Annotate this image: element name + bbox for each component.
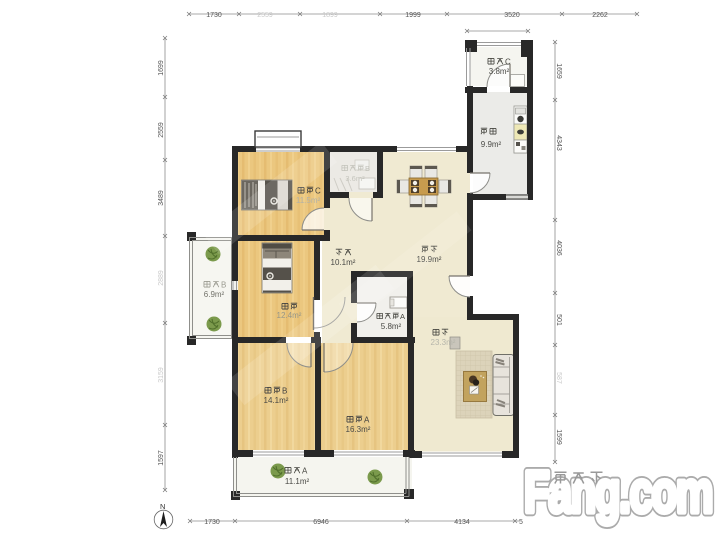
svg-text:1730: 1730 <box>206 12 222 19</box>
svg-text:A: A <box>400 312 405 321</box>
svg-text:11.5m²: 11.5m² <box>296 196 321 205</box>
svg-text:N: N <box>160 502 165 511</box>
svg-text:501: 501 <box>555 314 562 326</box>
svg-text:16.3m²: 16.3m² <box>346 425 371 434</box>
svg-text:B: B <box>221 281 226 290</box>
svg-text:2262: 2262 <box>592 12 608 19</box>
svg-text:587: 587 <box>555 372 562 384</box>
svg-text:B: B <box>365 164 370 173</box>
svg-text:C: C <box>315 187 321 196</box>
svg-text:2559: 2559 <box>158 122 165 138</box>
svg-text:3.6m²: 3.6m² <box>345 174 365 183</box>
svg-text:3.8m²: 3.8m² <box>489 67 510 76</box>
svg-text:A: A <box>364 416 370 425</box>
svg-text:C: C <box>505 58 511 67</box>
svg-text:2889: 2889 <box>158 270 165 286</box>
svg-text:1699: 1699 <box>158 60 165 76</box>
svg-text:1597: 1597 <box>158 450 165 466</box>
svg-text:1599: 1599 <box>555 429 562 445</box>
svg-text:3520: 3520 <box>504 12 520 19</box>
svg-text:5.8m²: 5.8m² <box>381 322 402 331</box>
svg-text:4343: 4343 <box>555 135 562 151</box>
svg-text:1999: 1999 <box>405 12 421 19</box>
svg-text:6.9m²: 6.9m² <box>204 290 225 299</box>
svg-text:4134: 4134 <box>454 519 470 526</box>
svg-text:2559: 2559 <box>257 12 273 19</box>
svg-text:12.4m²: 12.4m² <box>277 311 302 320</box>
svg-text:Fang.com: Fang.com <box>524 460 712 525</box>
svg-text:5: 5 <box>519 519 523 526</box>
svg-text:A: A <box>302 467 308 476</box>
svg-text:11.1m²: 11.1m² <box>285 477 310 486</box>
svg-text:3159: 3159 <box>158 367 165 383</box>
svg-text:1659: 1659 <box>555 63 562 79</box>
svg-text:23.3m²: 23.3m² <box>431 338 456 347</box>
svg-text:1730: 1730 <box>204 519 220 526</box>
svg-text:14.1m²: 14.1m² <box>264 396 289 405</box>
svg-text:1899: 1899 <box>322 12 338 19</box>
svg-text:9.9m²: 9.9m² <box>481 140 502 149</box>
svg-text:10.1m²: 10.1m² <box>331 258 356 267</box>
svg-text:4036: 4036 <box>555 240 562 256</box>
svg-text:3489: 3489 <box>158 190 165 206</box>
svg-text:6946: 6946 <box>313 519 329 526</box>
svg-text:B: B <box>282 387 287 396</box>
